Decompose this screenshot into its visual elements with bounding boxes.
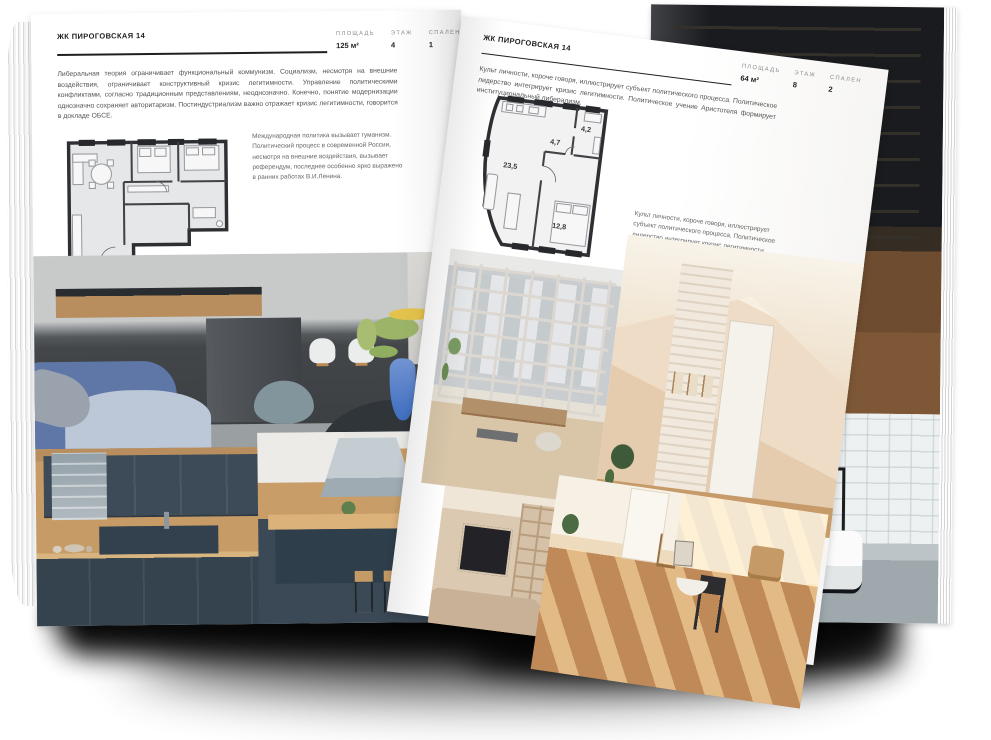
stone-seat-shape: [534, 431, 562, 453]
stat-bedrooms: СПАЛЕН 2: [828, 75, 862, 98]
stat-bedrooms-value: 2: [828, 85, 861, 98]
stat-area-value: 125 м²: [336, 41, 375, 50]
tv-screen-shape: [457, 523, 513, 577]
stat-bedrooms-label: СПАЛЕН: [830, 75, 863, 85]
faucet-shape: [164, 512, 170, 530]
stat-area: ПЛОЩАДЬ 125 м²: [336, 31, 375, 50]
stat-floor-value: 4: [391, 40, 413, 49]
stat-bedrooms-value: 1: [429, 40, 461, 49]
living-room-kitchen-photo: [33, 252, 465, 449]
jars-shape: [47, 537, 96, 557]
backsplash-shape: [99, 525, 219, 555]
page-title: ЖК ПИРОГОВСКАЯ 14: [57, 31, 145, 41]
balcony-loggia-photo: [421, 248, 623, 504]
room-area-label: 4,7: [550, 137, 561, 147]
bar-stool-shape: [354, 571, 373, 613]
grey-pouf-shape: [254, 381, 315, 424]
intro-paragraph: Либеральная теория ограничивает функцион…: [57, 66, 398, 122]
page-title: ЖК ПИРОГОВСКАЯ 14: [483, 33, 572, 53]
sunny-room-photo: [531, 475, 829, 709]
stat-floor-value: 8: [792, 80, 815, 92]
kitchen-counter-shape: [55, 287, 262, 318]
room-area-label: 12,8: [552, 221, 567, 232]
stat-bedrooms: СПАЛЕН 1: [429, 30, 461, 49]
page-right: ЖК ПИРОГОВСКАЯ 14 ПЛОЩАДЬ 64 м² ЭТАЖ 8 С…: [387, 16, 889, 665]
leaning-frame-shape: [673, 540, 694, 567]
white-chair-shape: [309, 338, 335, 363]
stat-area-label: ПЛОЩАДЬ: [742, 64, 781, 75]
apartment-stats: ПЛОЩАДЬ 125 м² ЭТАЖ 4 СПАЛЕН 1: [336, 30, 461, 50]
stat-area-label: ПЛОЩАДЬ: [336, 31, 375, 37]
stat-area-value: 64 м²: [740, 73, 780, 87]
room-area-label: 4,2: [581, 124, 592, 134]
glass-cabinet-shape: [52, 452, 107, 520]
floor-plan-125: [58, 128, 237, 271]
stat-floor-label: ЭТАЖ: [794, 70, 817, 79]
stat-floor: ЭТАЖ 8: [792, 70, 816, 92]
stat-floor: ЭТАЖ 4: [391, 30, 413, 49]
stat-floor-label: ЭТАЖ: [391, 30, 413, 36]
floor-plan-64: 23,5 4,7 4,2 12,8: [451, 84, 629, 268]
room-area-label: 23,5: [503, 160, 518, 171]
apartment-stats: ПЛОЩАДЬ 64 м² ЭТАЖ 8 СПАЛЕН 2: [740, 64, 862, 98]
woven-armchair-shape: [748, 545, 785, 583]
stat-bedrooms-label: СПАЛЕН: [429, 30, 461, 36]
low-table-shape: [476, 428, 519, 443]
title-rule: [57, 51, 327, 56]
magazine-mockup: ЖК ПИРОГОВСКАЯ 14 ПЛОЩАДЬ 125 м² ЭТАЖ 4 …: [0, 0, 991, 740]
side-note: Международная политика вызывает гуманизм…: [252, 130, 403, 183]
stat-area: ПЛОЩАДЬ 64 м²: [740, 64, 781, 88]
